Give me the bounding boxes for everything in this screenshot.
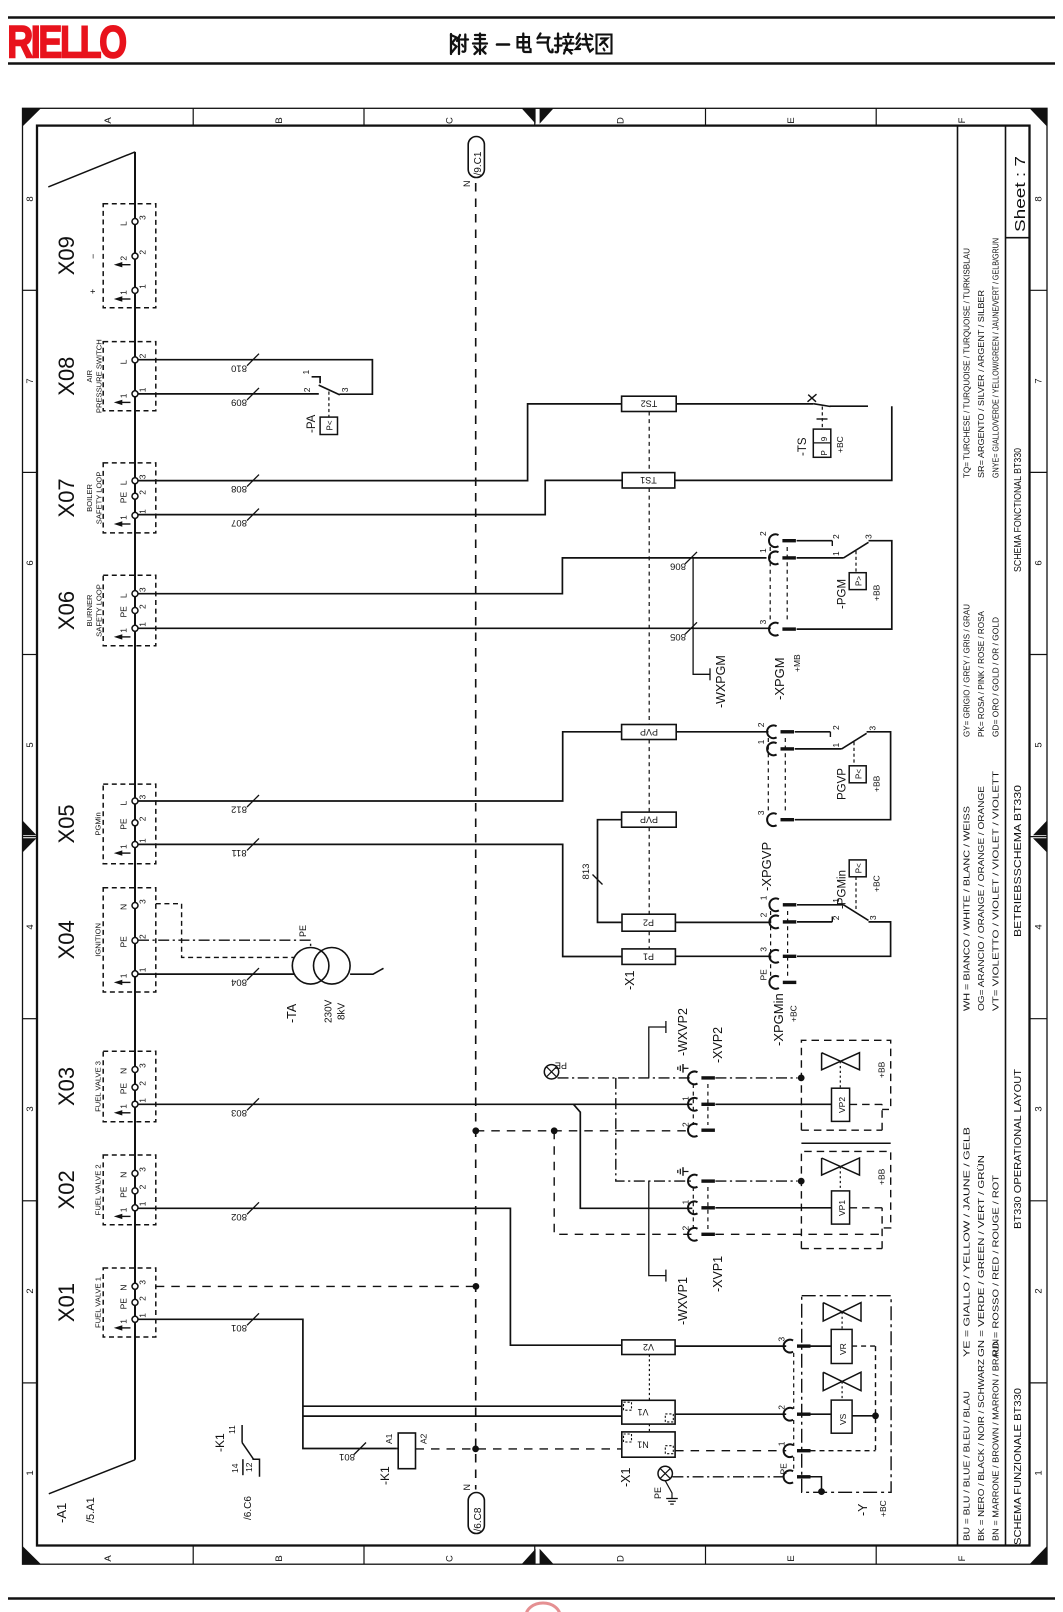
svg-text:-WXPGM: -WXPGM	[714, 655, 728, 708]
svg-text:-WXVP1: -WXVP1	[676, 1277, 690, 1325]
svg-text:A: A	[103, 117, 114, 124]
svg-text:PVP: PVP	[640, 727, 658, 737]
svg-text:801: 801	[231, 1322, 247, 1333]
svg-text:PE: PE	[298, 925, 308, 937]
svg-text:N1: N1	[637, 1439, 649, 1449]
svg-text:1: 1	[831, 551, 841, 556]
svg-text:P: P	[820, 450, 829, 455]
svg-text:-PGM: -PGM	[837, 579, 849, 609]
svg-text:809: 809	[231, 397, 247, 408]
svg-text:SR= ARGENTO / SILVER / ARGENT: SR= ARGENTO / SILVER / ARGENT / SILBER	[977, 290, 986, 478]
svg-text:PE: PE	[119, 1083, 129, 1095]
svg-text:BETRIEBSSCHEMA BT330: BETRIEBSSCHEMA BT330	[1012, 785, 1024, 937]
svg-text:12: 12	[244, 1462, 254, 1472]
svg-text:812: 812	[231, 804, 247, 815]
svg-text:1: 1	[758, 548, 768, 553]
svg-text:VS: VS	[838, 1413, 848, 1425]
svg-text:1: 1	[831, 743, 841, 748]
svg-text:5: 5	[1034, 742, 1045, 747]
svg-text:BK = NERO / BLACK / NOIR / SCH: BK = NERO / BLACK / NOIR / SCHWARZ	[977, 1359, 986, 1541]
svg-text:2: 2	[138, 1296, 148, 1301]
svg-text:N: N	[119, 1068, 129, 1074]
svg-text:2: 2	[681, 1226, 691, 1231]
svg-text:V2: V2	[643, 1342, 654, 1352]
svg-text:3: 3	[138, 899, 148, 904]
svg-text:3: 3	[138, 474, 148, 479]
svg-text:3: 3	[340, 387, 350, 392]
svg-text:1: 1	[138, 838, 148, 843]
svg-text:D: D	[615, 117, 626, 124]
svg-text:+BB: +BB	[877, 1168, 887, 1185]
svg-text:230V: 230V	[324, 999, 335, 1023]
svg-text:−: −	[88, 254, 98, 259]
svg-text:3: 3	[138, 1063, 148, 1068]
svg-text:2: 2	[138, 1081, 148, 1086]
svg-text:-XPGVP: -XPGVP	[759, 842, 774, 891]
svg-text:SAFETY LOOP: SAFETY LOOP	[95, 472, 104, 525]
svg-text:N: N	[462, 1484, 472, 1491]
svg-text:FUEL VALVE 2: FUEL VALVE 2	[94, 1164, 103, 1215]
svg-text:Sheet : 7: Sheet : 7	[1013, 156, 1029, 232]
svg-text:AIR: AIR	[85, 369, 94, 382]
svg-text:7: 7	[25, 378, 36, 383]
svg-text:D: D	[615, 1555, 626, 1562]
svg-text:-XPGM: -XPGM	[772, 657, 787, 700]
svg-text:2: 2	[758, 531, 768, 536]
svg-text:1: 1	[138, 284, 148, 289]
svg-text:802: 802	[231, 1211, 247, 1222]
svg-text:1: 1	[138, 387, 148, 392]
svg-text:E: E	[786, 1555, 797, 1561]
svg-text:YE = GIALLO / YELLOW / JAUNE /: YE = GIALLO / YELLOW / JAUNE / GELB	[963, 1127, 972, 1357]
svg-text:GY= GRIGIO / GREY / GRIS / GRA: GY= GRIGIO / GREY / GRIS / GRAU	[963, 604, 972, 737]
svg-text:-XVP2: -XVP2	[711, 1027, 725, 1063]
svg-text:+: +	[88, 289, 98, 294]
svg-text:PE: PE	[119, 492, 129, 504]
svg-text:SAFETY LOOP: SAFETY LOOP	[95, 584, 104, 637]
svg-text:1: 1	[759, 895, 769, 900]
svg-text:VP2: VP2	[837, 1097, 847, 1113]
svg-text:-Y: -Y	[856, 1503, 870, 1516]
svg-text:P<: P<	[855, 863, 864, 873]
svg-text:3: 3	[868, 915, 878, 920]
svg-text:-X1: -X1	[619, 1468, 633, 1488]
svg-text:+BC: +BC	[789, 1005, 799, 1022]
svg-text:VR: VR	[838, 1343, 848, 1355]
svg-text:E: E	[786, 117, 797, 123]
svg-text:6: 6	[1034, 560, 1045, 565]
svg-text:A: A	[103, 1555, 114, 1562]
svg-text:-A1: -A1	[54, 1503, 69, 1523]
svg-text:X05: X05	[54, 804, 79, 843]
svg-text:X08: X08	[54, 357, 79, 396]
svg-text:1: 1	[119, 844, 129, 849]
svg-text:RD = ROSSO / RED / ROUGE / ROT: RD = ROSSO / RED / ROUGE / ROT	[992, 1175, 1001, 1357]
svg-text:N: N	[119, 1285, 129, 1291]
svg-text:1: 1	[756, 739, 766, 744]
svg-text:1: 1	[119, 1319, 129, 1324]
svg-text:8kV: 8kV	[337, 1002, 348, 1020]
svg-text:-TA: -TA	[285, 1003, 299, 1023]
svg-text:OG= ARANCIO / ORANGE / ORANGE: OG= ARANCIO / ORANGE / ORANGE / ORANGE	[977, 786, 986, 1011]
svg-text:C: C	[445, 1555, 456, 1562]
svg-text:810: 810	[231, 362, 247, 373]
svg-text:14: 14	[230, 1463, 240, 1473]
svg-text:P1: P1	[643, 951, 654, 961]
svg-text:VP1: VP1	[837, 1200, 847, 1216]
svg-text:SCHEMA FUNZIONALE BT330: SCHEMA FUNZIONALE BT330	[1012, 1388, 1024, 1545]
svg-text:PE: PE	[555, 1060, 567, 1070]
svg-text:1: 1	[138, 1201, 148, 1206]
svg-text:2: 2	[138, 250, 148, 255]
svg-text:F: F	[957, 1555, 968, 1561]
svg-text:3: 3	[758, 620, 768, 625]
svg-text:3: 3	[777, 1337, 787, 1342]
svg-text:8: 8	[1034, 196, 1045, 201]
svg-text:X02: X02	[54, 1170, 79, 1209]
svg-text:+BB: +BB	[872, 584, 882, 601]
svg-text:WH = BIANCO / WHITE / BLANC /: WH = BIANCO / WHITE / BLANC / WEISS	[963, 806, 972, 1011]
svg-text:2: 2	[119, 256, 129, 261]
svg-text:3: 3	[864, 534, 874, 539]
svg-text:L: L	[119, 221, 129, 226]
svg-text:+BC: +BC	[835, 436, 845, 453]
svg-text:-XPGMin: -XPGMin	[771, 993, 786, 1046]
svg-text:2: 2	[138, 490, 148, 495]
svg-text:2: 2	[138, 816, 148, 821]
svg-text:6: 6	[25, 560, 36, 565]
svg-text:P<: P<	[326, 420, 335, 430]
svg-text:/6.C6: /6.C6	[243, 1496, 254, 1520]
svg-text:-XVP1: -XVP1	[711, 1256, 725, 1292]
svg-text:2: 2	[831, 725, 841, 730]
svg-text:4: 4	[1034, 924, 1045, 929]
svg-text:813: 813	[581, 864, 592, 880]
svg-text:1: 1	[119, 515, 129, 520]
svg-text:1: 1	[138, 1313, 148, 1318]
svg-text:PGMin: PGMin	[94, 812, 103, 835]
svg-text:BU = BLU / BLUE / BLEU / BLAU: BU = BLU / BLUE / BLEU / BLAU	[963, 1391, 972, 1541]
svg-text:P2: P2	[643, 918, 654, 928]
svg-text:+BC: +BC	[878, 1500, 888, 1517]
svg-text:2: 2	[756, 722, 766, 727]
svg-text:/5.A1: /5.A1	[85, 1497, 97, 1523]
svg-text:PE: PE	[119, 818, 129, 830]
svg-text:808: 808	[231, 483, 247, 494]
svg-text:1: 1	[119, 1104, 129, 1109]
svg-text:BURNER: BURNER	[85, 594, 94, 627]
svg-text:1: 1	[777, 1441, 787, 1446]
svg-text:3: 3	[138, 1167, 148, 1172]
svg-text:P>: P>	[855, 576, 864, 586]
svg-text:811: 811	[231, 847, 246, 858]
svg-text:V1: V1	[637, 1407, 648, 1417]
svg-text:801: 801	[339, 1451, 355, 1462]
svg-text:2: 2	[302, 387, 312, 392]
svg-text:X09: X09	[54, 236, 79, 275]
svg-text:1: 1	[119, 1207, 129, 1212]
svg-text:3: 3	[138, 215, 148, 220]
svg-text:VT= VIOLETTO / VIOLET / VIOLET: VT= VIOLETTO / VIOLET / VIOLET / VIOLETT	[992, 771, 1001, 1011]
svg-text:N: N	[462, 181, 472, 188]
svg-text:2: 2	[759, 912, 769, 917]
svg-text:GD= ORO / GOLD / OR / GOLD: GD= ORO / GOLD / OR / GOLD	[992, 617, 1001, 737]
svg-text:2: 2	[1034, 1288, 1045, 1293]
svg-text:-K1: -K1	[378, 1466, 392, 1485]
svg-text:PE: PE	[119, 1186, 129, 1198]
svg-text:2: 2	[831, 534, 841, 539]
svg-text:-K1: -K1	[213, 1433, 227, 1452]
svg-text:2: 2	[777, 1405, 787, 1410]
svg-text:TS2: TS2	[641, 399, 658, 409]
svg-text:3: 3	[25, 1106, 36, 1111]
svg-text:TQ= TURCHESE / TURQUOISE / TUR: TQ= TURCHESE / TURQUOISE / TURQUOISE / T…	[963, 248, 972, 478]
svg-text:GNYE= GIALLO/VERDE / YELLOW/GR: GNYE= GIALLO/VERDE / YELLOW/GREEN / JAUN…	[992, 238, 1001, 478]
svg-text:SCHEMA FONCTIONAL BT330: SCHEMA FONCTIONAL BT330	[1013, 448, 1024, 572]
svg-text:-PA: -PA	[306, 414, 318, 433]
svg-text:+MB: +MB	[792, 654, 802, 672]
svg-text:RIELLO: RIELLO	[7, 17, 125, 68]
svg-text:+BB: +BB	[877, 1061, 887, 1078]
svg-text:PE: PE	[759, 969, 769, 981]
svg-text:PE: PE	[119, 606, 129, 618]
svg-text:FUEL VALVE 1: FUEL VALVE 1	[94, 1277, 103, 1328]
svg-text:2: 2	[25, 1288, 36, 1293]
svg-text:TS1: TS1	[640, 475, 657, 485]
svg-text:X07: X07	[54, 478, 79, 517]
svg-text:8: 8	[25, 196, 36, 201]
svg-text:9: 9	[820, 436, 829, 441]
svg-text:B: B	[274, 117, 285, 123]
svg-text:1: 1	[138, 1098, 148, 1103]
svg-text:IGNITION: IGNITION	[94, 923, 103, 957]
svg-text:1: 1	[1034, 1470, 1045, 1475]
svg-text:PE: PE	[779, 1463, 789, 1475]
svg-text:A2: A2	[419, 1433, 429, 1444]
svg-text:1: 1	[138, 509, 148, 514]
svg-text:-X1: -X1	[623, 971, 637, 991]
svg-text:3: 3	[138, 1280, 148, 1285]
svg-text:1: 1	[301, 370, 311, 375]
svg-text:A1: A1	[384, 1433, 394, 1444]
svg-text:/9.C1: /9.C1	[473, 151, 484, 175]
svg-text:PE: PE	[119, 936, 129, 948]
svg-text:803: 803	[231, 1107, 247, 1118]
svg-text:1: 1	[138, 967, 148, 972]
svg-text:/6.C8: /6.C8	[473, 1507, 484, 1531]
svg-text:B: B	[274, 1555, 285, 1561]
svg-text:-TS: -TS	[797, 437, 809, 456]
svg-text:-WXVP2: -WXVP2	[676, 1008, 690, 1056]
svg-text:1: 1	[25, 1470, 36, 1475]
svg-text:7: 7	[1034, 378, 1045, 383]
svg-text:2: 2	[138, 934, 148, 939]
svg-text:X03: X03	[54, 1067, 79, 1106]
svg-text:BOILER: BOILER	[85, 483, 94, 511]
svg-text:BT330 OPERATIONAL LAYOUT: BT330 OPERATIONAL LAYOUT	[1012, 1068, 1024, 1229]
svg-text:2: 2	[138, 604, 148, 609]
svg-text:X04: X04	[54, 920, 79, 959]
svg-text:N: N	[119, 904, 129, 910]
svg-text:L: L	[119, 593, 129, 598]
svg-text:GN = VERDE / GREEN / VERT / GR: GN = VERDE / GREEN / VERT / GRÜN	[977, 1155, 986, 1357]
svg-text:1: 1	[681, 1200, 691, 1205]
svg-text:3: 3	[756, 810, 766, 815]
svg-text:P<: P<	[855, 769, 864, 779]
svg-text:BN = MARRONE / BROWN / MARRON: BN = MARRONE / BROWN / MARRON / BRAUN	[992, 1339, 1001, 1541]
svg-text:3: 3	[138, 795, 148, 800]
svg-text:+BB: +BB	[872, 775, 882, 792]
svg-text:PVP: PVP	[640, 814, 658, 824]
svg-text:L: L	[119, 801, 129, 806]
svg-text:1: 1	[119, 393, 129, 398]
svg-text:2: 2	[138, 1184, 148, 1189]
svg-text:F: F	[957, 117, 968, 123]
svg-text:3: 3	[138, 587, 148, 592]
svg-text:4: 4	[25, 924, 36, 929]
svg-text:2: 2	[138, 353, 148, 358]
svg-text:PK= ROSA / PINK / ROSE / ROSA: PK= ROSA / PINK / ROSE / ROSA	[977, 610, 986, 737]
svg-text:+BC: +BC	[872, 875, 882, 892]
svg-text:PE: PE	[653, 1487, 663, 1499]
svg-text:3: 3	[1034, 1106, 1045, 1111]
svg-text:805: 805	[670, 631, 686, 642]
svg-text:11: 11	[227, 1425, 237, 1434]
svg-text:5: 5	[25, 742, 36, 747]
svg-text:804: 804	[231, 977, 247, 988]
svg-text:-PGMin: -PGMin	[837, 870, 849, 909]
svg-text:807: 807	[231, 517, 247, 528]
svg-text:1: 1	[119, 290, 129, 295]
svg-text:2: 2	[831, 915, 841, 920]
svg-text:PGVP: PGVP	[837, 768, 849, 800]
svg-text:L: L	[119, 359, 129, 364]
svg-text:L: L	[119, 480, 129, 485]
svg-text:3: 3	[867, 726, 877, 731]
svg-text:2: 2	[681, 1122, 691, 1127]
svg-text:FUEL VALVE 3: FUEL VALVE 3	[94, 1061, 103, 1112]
svg-text:1: 1	[119, 973, 129, 978]
svg-text:X06: X06	[54, 591, 79, 630]
svg-text:1: 1	[119, 628, 129, 633]
svg-text:PRESSURE SWITCH: PRESSURE SWITCH	[95, 339, 104, 413]
svg-text:806: 806	[670, 561, 686, 572]
svg-text:C: C	[445, 117, 456, 124]
svg-text:PE: PE	[119, 1298, 129, 1310]
svg-text:1: 1	[138, 622, 148, 627]
svg-text:1: 1	[681, 1096, 691, 1101]
svg-text:N: N	[119, 1172, 129, 1178]
svg-text:X01: X01	[54, 1283, 79, 1322]
svg-text:3: 3	[759, 947, 769, 952]
